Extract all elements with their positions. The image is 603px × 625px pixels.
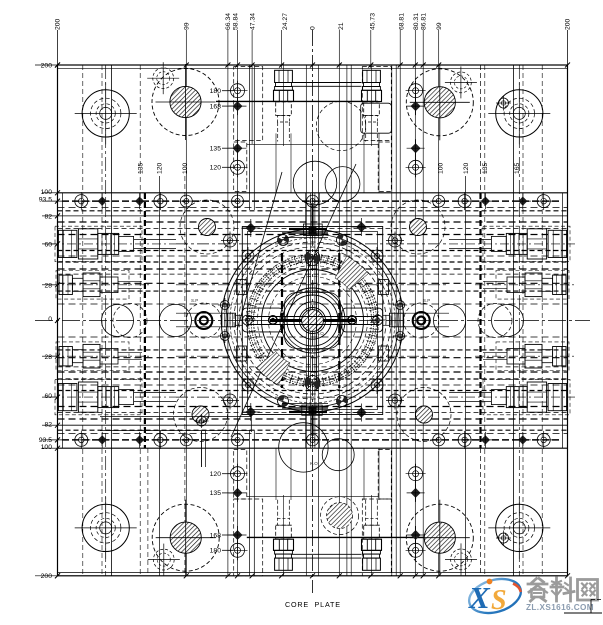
svg-text:68.81: 68.81 — [399, 13, 406, 30]
svg-text:99: 99 — [184, 22, 191, 30]
svg-text:82: 82 — [44, 213, 52, 220]
svg-text:45.73: 45.73 — [370, 13, 377, 30]
svg-text:165: 165 — [514, 162, 521, 174]
svg-text:100: 100 — [41, 189, 53, 196]
svg-text:120: 120 — [210, 471, 222, 478]
svg-text:ZL.XS1616.COM: ZL.XS1616.COM — [526, 603, 594, 612]
svg-text:120: 120 — [463, 162, 470, 174]
svg-text:93.5: 93.5 — [39, 437, 52, 444]
svg-text:100: 100 — [41, 444, 53, 451]
svg-text:200: 200 — [55, 18, 62, 30]
svg-text:S.P: S.P — [423, 298, 430, 303]
svg-text:S.P: S.P — [191, 298, 198, 303]
svg-text:60: 60 — [44, 393, 52, 400]
svg-text:47.34: 47.34 — [249, 13, 256, 30]
svg-text:28: 28 — [44, 354, 52, 361]
svg-text:180: 180 — [210, 548, 222, 555]
svg-text:28: 28 — [44, 282, 52, 289]
svg-text:CORE PLATE: CORE PLATE — [285, 600, 341, 609]
svg-text:0: 0 — [310, 26, 317, 30]
svg-text:21: 21 — [338, 22, 345, 30]
svg-text:168: 168 — [210, 532, 222, 539]
svg-text:86.81: 86.81 — [421, 13, 428, 30]
svg-text:K.O: K.O — [316, 331, 324, 336]
svg-text:135: 135 — [210, 146, 222, 153]
svg-text:82: 82 — [44, 421, 52, 428]
svg-text:24.27: 24.27 — [282, 13, 289, 30]
svg-text:200: 200 — [565, 18, 572, 30]
svg-text:S: S — [491, 585, 507, 616]
svg-text:0: 0 — [48, 316, 52, 323]
svg-text:100: 100 — [182, 162, 189, 174]
svg-text:58.84: 58.84 — [232, 13, 239, 30]
svg-text:66.34: 66.34 — [225, 13, 232, 30]
svg-text:168: 168 — [210, 103, 222, 110]
svg-text:80.31: 80.31 — [413, 13, 420, 30]
svg-text:135: 135 — [210, 490, 222, 497]
svg-text:180: 180 — [210, 88, 222, 95]
svg-text:135: 135 — [137, 162, 144, 174]
svg-text:X: X — [468, 580, 491, 615]
svg-text:K.O: K.O — [310, 461, 318, 466]
svg-text:60: 60 — [44, 241, 52, 248]
svg-text:93.5: 93.5 — [39, 196, 52, 203]
svg-text:200: 200 — [41, 62, 53, 69]
svg-text:120: 120 — [210, 165, 222, 172]
svg-text:100: 100 — [437, 162, 444, 174]
svg-text:200: 200 — [41, 573, 53, 580]
svg-text:120: 120 — [157, 162, 164, 174]
svg-text:135: 135 — [482, 162, 489, 174]
svg-text:99: 99 — [436, 22, 443, 30]
